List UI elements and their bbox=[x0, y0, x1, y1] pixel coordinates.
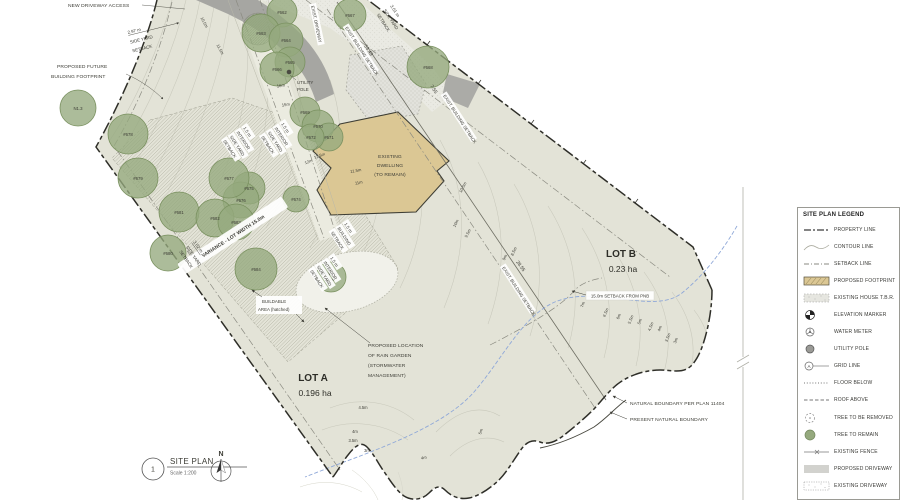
legend-row-tree-remain: TREE TO REMAIN bbox=[803, 426, 897, 443]
sheet-title: SITE PLAN bbox=[170, 457, 214, 466]
svg-text:A: A bbox=[807, 364, 810, 369]
contour-label: 4m bbox=[352, 429, 358, 434]
north-label: N bbox=[218, 451, 223, 458]
legend-row-tree-removed: TREE TO BE REMOVED bbox=[803, 409, 897, 426]
tree-label: #670 bbox=[313, 124, 323, 129]
legend-label: EXISTING DRIVEWAY bbox=[834, 483, 887, 489]
tree-label: #680 bbox=[163, 251, 173, 256]
proposed-future-label-1: PROPOSED FUTURE bbox=[57, 64, 108, 70]
grid-line bbox=[737, 187, 749, 500]
tree-removed-icon bbox=[803, 412, 830, 424]
legend-label: PROPOSED FOOTPRINT bbox=[834, 278, 895, 284]
legend-row-grid-line: A GRID LINE bbox=[803, 358, 897, 375]
floor-below-icon bbox=[803, 377, 830, 389]
water-meter-icon bbox=[803, 326, 830, 338]
legend-row-proposed-driveway: PROPOSED DRIVEWAY bbox=[803, 460, 897, 477]
legend-row-water-meter: WATER METER bbox=[803, 324, 897, 341]
elevation-marker-icon bbox=[803, 309, 830, 321]
proposed-future-label-2: BUILDING FOOTPRINT bbox=[51, 74, 106, 80]
legend-label: EXISTING FENCE bbox=[834, 449, 878, 455]
legend-row-existing-fence: EXISTING FENCE bbox=[803, 443, 897, 460]
legend-row-property-line: PROPERTY LINE bbox=[803, 221, 897, 238]
lot-a-area: 0.196 ha bbox=[298, 388, 331, 398]
tree-remain-icon bbox=[803, 429, 830, 441]
contour-line-icon bbox=[803, 241, 830, 253]
tree-label: #678 bbox=[123, 132, 133, 137]
rain-line-1: PROPOSED LOCATION bbox=[368, 343, 424, 349]
tree-label: #674 bbox=[291, 197, 301, 202]
legend-label: CONTOUR LINE bbox=[834, 244, 874, 250]
tree-label: #668 bbox=[423, 65, 433, 70]
tree-label: #665 bbox=[285, 60, 295, 65]
proposed-driveway-icon bbox=[803, 463, 830, 475]
tree-label: #663 bbox=[256, 31, 266, 36]
tree-label: #667 bbox=[345, 13, 355, 18]
legend-label: PROPOSED DRIVEWAY bbox=[834, 466, 892, 472]
dwelling-label-2: DWELLING bbox=[377, 163, 403, 169]
tree-label: #677 bbox=[224, 176, 234, 181]
tree-label: #684 bbox=[251, 267, 261, 272]
pnb-setback-text: 15.0m SETBACK FROM PNB bbox=[591, 294, 649, 299]
tree-label: #682 bbox=[210, 216, 220, 221]
setback-line-icon bbox=[803, 258, 830, 270]
existing-house-icon bbox=[803, 292, 830, 304]
buildable-line-1: BUILDABLE bbox=[262, 299, 286, 304]
legend-label: SETBACK LINE bbox=[834, 261, 872, 267]
roof-above-icon bbox=[803, 394, 830, 406]
legend-row-existing-house: EXISTING HOUSE T.B.R. bbox=[803, 289, 897, 306]
natural-boundary-labels: NATURAL BOUNDARY PER PLAN 11404 PRESENT … bbox=[610, 396, 725, 423]
title-block: 1 SITE PLAN Scale 1:200 bbox=[142, 457, 247, 480]
legend-row-elevation-marker: ELEVATION MARKER bbox=[803, 306, 897, 323]
contour-label: 4.5m bbox=[358, 405, 368, 410]
legend-label: TREE TO REMAIN bbox=[834, 432, 878, 438]
nb-plan-label: NATURAL BOUNDARY PER PLAN 11404 bbox=[630, 401, 725, 407]
sheet-number: 1 bbox=[151, 467, 155, 474]
legend-row-setback-line: SETBACK LINE bbox=[803, 255, 897, 272]
legend-label: EXISTING HOUSE T.B.R. bbox=[834, 295, 895, 301]
setback-line-1: 2.97 m bbox=[127, 27, 142, 35]
legend-label: PROPERTY LINE bbox=[834, 227, 876, 233]
site-plan-sheet: N1.3 #662 #663 #664 #665 #666 #667 #668 … bbox=[0, 0, 900, 500]
tree-label: #666 bbox=[272, 67, 282, 72]
tree-label: #664 bbox=[281, 38, 291, 43]
legend-row-proposed-footprint: PROPOSED FOOTPRINT bbox=[803, 272, 897, 289]
legend-row-roof-above: ROOF ABOVE bbox=[803, 392, 897, 409]
site-plan-drawing: N1.3 #662 #663 #664 #665 #666 #667 #668 … bbox=[0, 0, 900, 500]
north-arrow: N bbox=[211, 451, 231, 482]
lot-a-name: LOT A bbox=[298, 373, 328, 384]
tree-label: #671 bbox=[324, 135, 334, 140]
rain-line-2: OF RAIN GARDEN bbox=[368, 353, 412, 359]
legend-row-floor-below: FLOOR BELOW bbox=[803, 375, 897, 392]
legend-label: GRID LINE bbox=[834, 363, 860, 369]
dwelling-label-1: EXISTING bbox=[378, 154, 402, 160]
existing-fence-icon bbox=[803, 446, 830, 458]
contour-label: 3m bbox=[364, 448, 370, 453]
tree-label: #681 bbox=[174, 210, 184, 215]
utility-pole-dot bbox=[287, 70, 292, 75]
dwelling-label-3: (TO REMAIN) bbox=[374, 172, 406, 178]
sheet-scale: Scale 1:200 bbox=[170, 471, 197, 477]
contour-label: 3.5m bbox=[348, 438, 358, 443]
utility-pole-icon bbox=[803, 343, 830, 355]
grid-line-icon: A bbox=[803, 360, 830, 372]
property-line-icon bbox=[803, 224, 830, 236]
legend-row-utility-pole: UTILITY POLE bbox=[803, 341, 897, 358]
legend-label: TREE TO BE REMOVED bbox=[834, 415, 893, 421]
proposed-footprint-icon bbox=[803, 275, 830, 287]
legend-panel: SITE PLAN LEGEND PROPERTY LINE CONTOUR L… bbox=[797, 207, 900, 500]
tree-label: #672 bbox=[306, 135, 316, 140]
nb-present-label: PRESENT NATURAL BOUNDARY bbox=[630, 417, 709, 423]
tree-label: #676 bbox=[236, 198, 246, 203]
legend-label: FLOOR BELOW bbox=[834, 380, 872, 386]
tree-label: #662 bbox=[277, 10, 287, 15]
legend-label: ELEVATION MARKER bbox=[834, 312, 887, 318]
new-driveway-access-label: NEW DRIVEWAY ACCESS bbox=[68, 3, 130, 9]
buildable-line-2: AREA (hatched) bbox=[258, 307, 290, 312]
utility-pole-label-1: UTILITY bbox=[297, 80, 313, 85]
tree-label: #679 bbox=[133, 176, 143, 181]
rain-line-4: MANAGEMENT) bbox=[368, 373, 406, 379]
lot-b-area: 0.23 ha bbox=[609, 264, 638, 274]
tree-label: N1.3 bbox=[73, 106, 83, 111]
legend-label: UTILITY POLE bbox=[834, 346, 869, 352]
legend-label: WATER METER bbox=[834, 329, 872, 335]
rain-line-3: (STORMWATER bbox=[368, 363, 406, 369]
legend-title: SITE PLAN LEGEND bbox=[803, 212, 897, 218]
tree-label: #669 bbox=[300, 110, 310, 115]
tree-label: #675 bbox=[244, 186, 254, 191]
legend-label: ROOF ABOVE bbox=[834, 397, 868, 403]
lot-b-name: LOT B bbox=[606, 249, 636, 260]
legend-row-existing-driveway: EXISTING DRIVEWAY bbox=[803, 477, 897, 494]
utility-pole-label-2: POLE bbox=[297, 87, 309, 92]
legend-row-contour-line: CONTOUR LINE bbox=[803, 238, 897, 255]
existing-driveway-icon bbox=[803, 480, 830, 492]
